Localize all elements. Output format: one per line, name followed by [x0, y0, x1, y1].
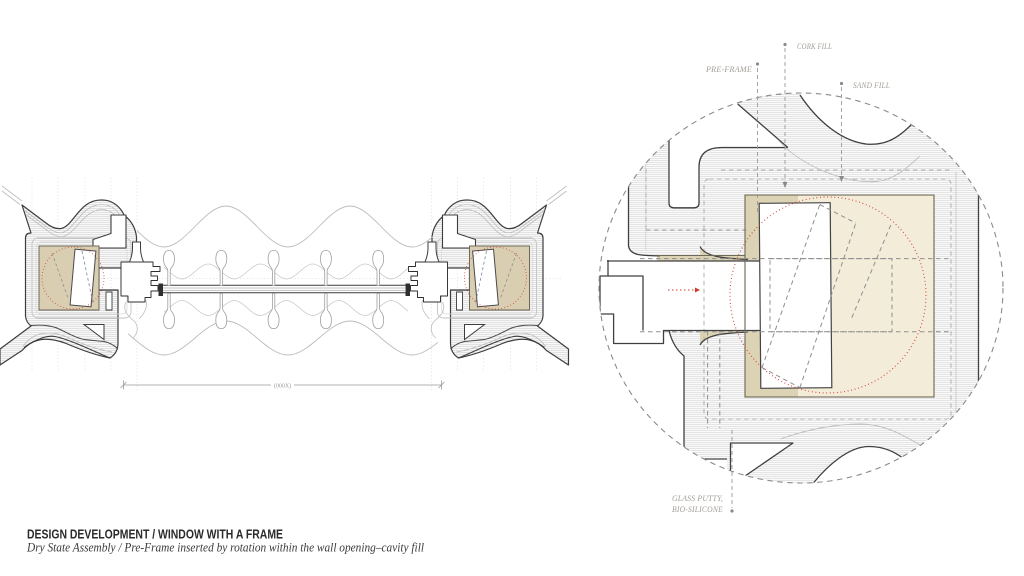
svg-text:PRE-FRAME: PRE-FRAME [705, 64, 753, 74]
svg-text:CORK FILL: CORK FILL [797, 41, 832, 51]
svg-text:GLASS PUTTY,: GLASS PUTTY, [672, 493, 723, 503]
svg-text:(000X): (000X) [274, 382, 291, 389]
svg-text:BIO-SILICONE: BIO-SILICONE [672, 504, 724, 514]
svg-text:SAND FILL: SAND FILL [853, 80, 890, 90]
svg-text:Dry State Assembly / Pre-Fram: Dry State Assembly / Pre-Frame inserted … [26, 540, 424, 555]
